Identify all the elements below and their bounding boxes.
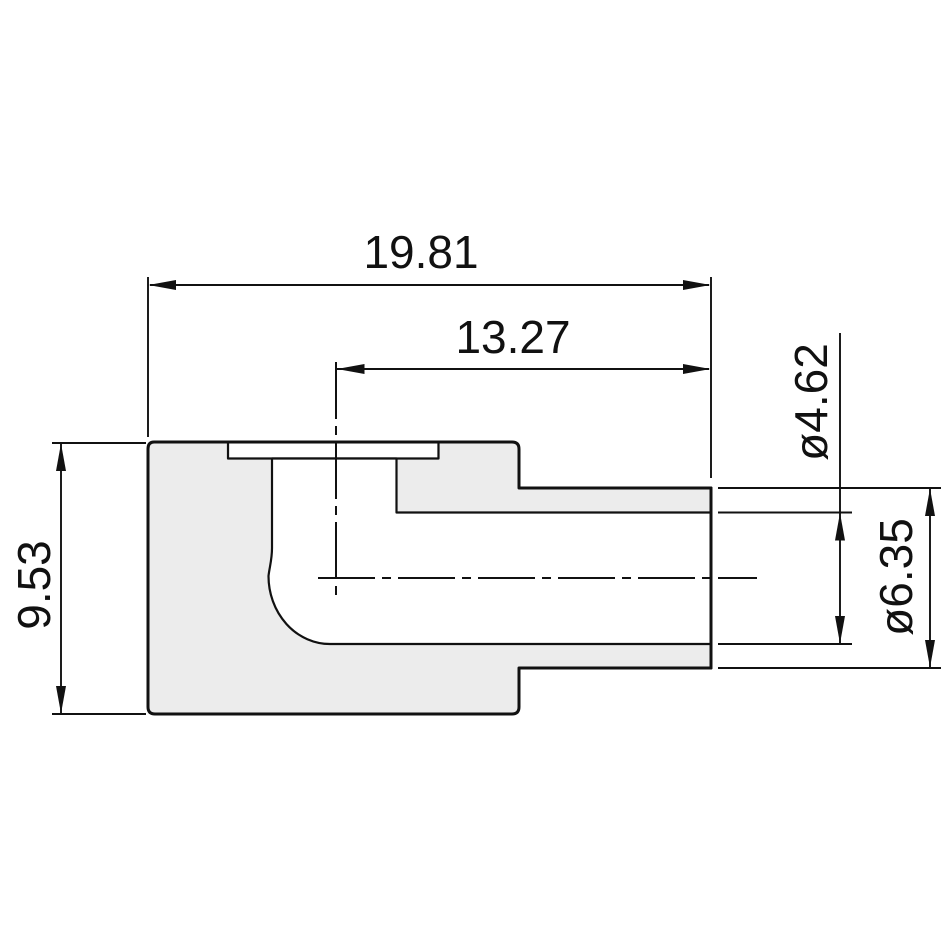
dimension-label-port-to-end: 13.27 <box>455 311 570 363</box>
dimension-overall-length: 19.81 <box>148 226 711 478</box>
elbow-fitting-section-drawing: 19.81 13.27 9.53 ø4.62 <box>0 0 946 946</box>
arrowhead-left <box>149 280 177 290</box>
collet-slot-fill <box>230 444 438 458</box>
arrowhead-bottom <box>56 686 66 714</box>
dimension-port-to-end: 13.27 <box>337 311 711 374</box>
technical-drawing-page: 19.81 13.27 9.53 ø4.62 <box>0 0 946 946</box>
arrowhead-bottom <box>925 640 935 668</box>
dimension-body-height: 9.53 <box>8 443 146 714</box>
dimension-label-bore-diameter: ø4.62 <box>785 343 837 461</box>
arrowhead-right <box>683 364 711 374</box>
dimension-label-body-height: 9.53 <box>8 540 60 630</box>
arrowhead-top <box>56 444 66 472</box>
dimension-label-tube-outer-diameter: ø6.35 <box>870 518 922 636</box>
arrowhead-top <box>925 489 935 517</box>
dimension-label-overall-length: 19.81 <box>363 226 478 278</box>
arrowhead-right <box>683 280 711 290</box>
arrowhead-bottom <box>835 616 845 644</box>
arrowhead-top <box>835 513 845 541</box>
arrowhead-left <box>337 364 365 374</box>
